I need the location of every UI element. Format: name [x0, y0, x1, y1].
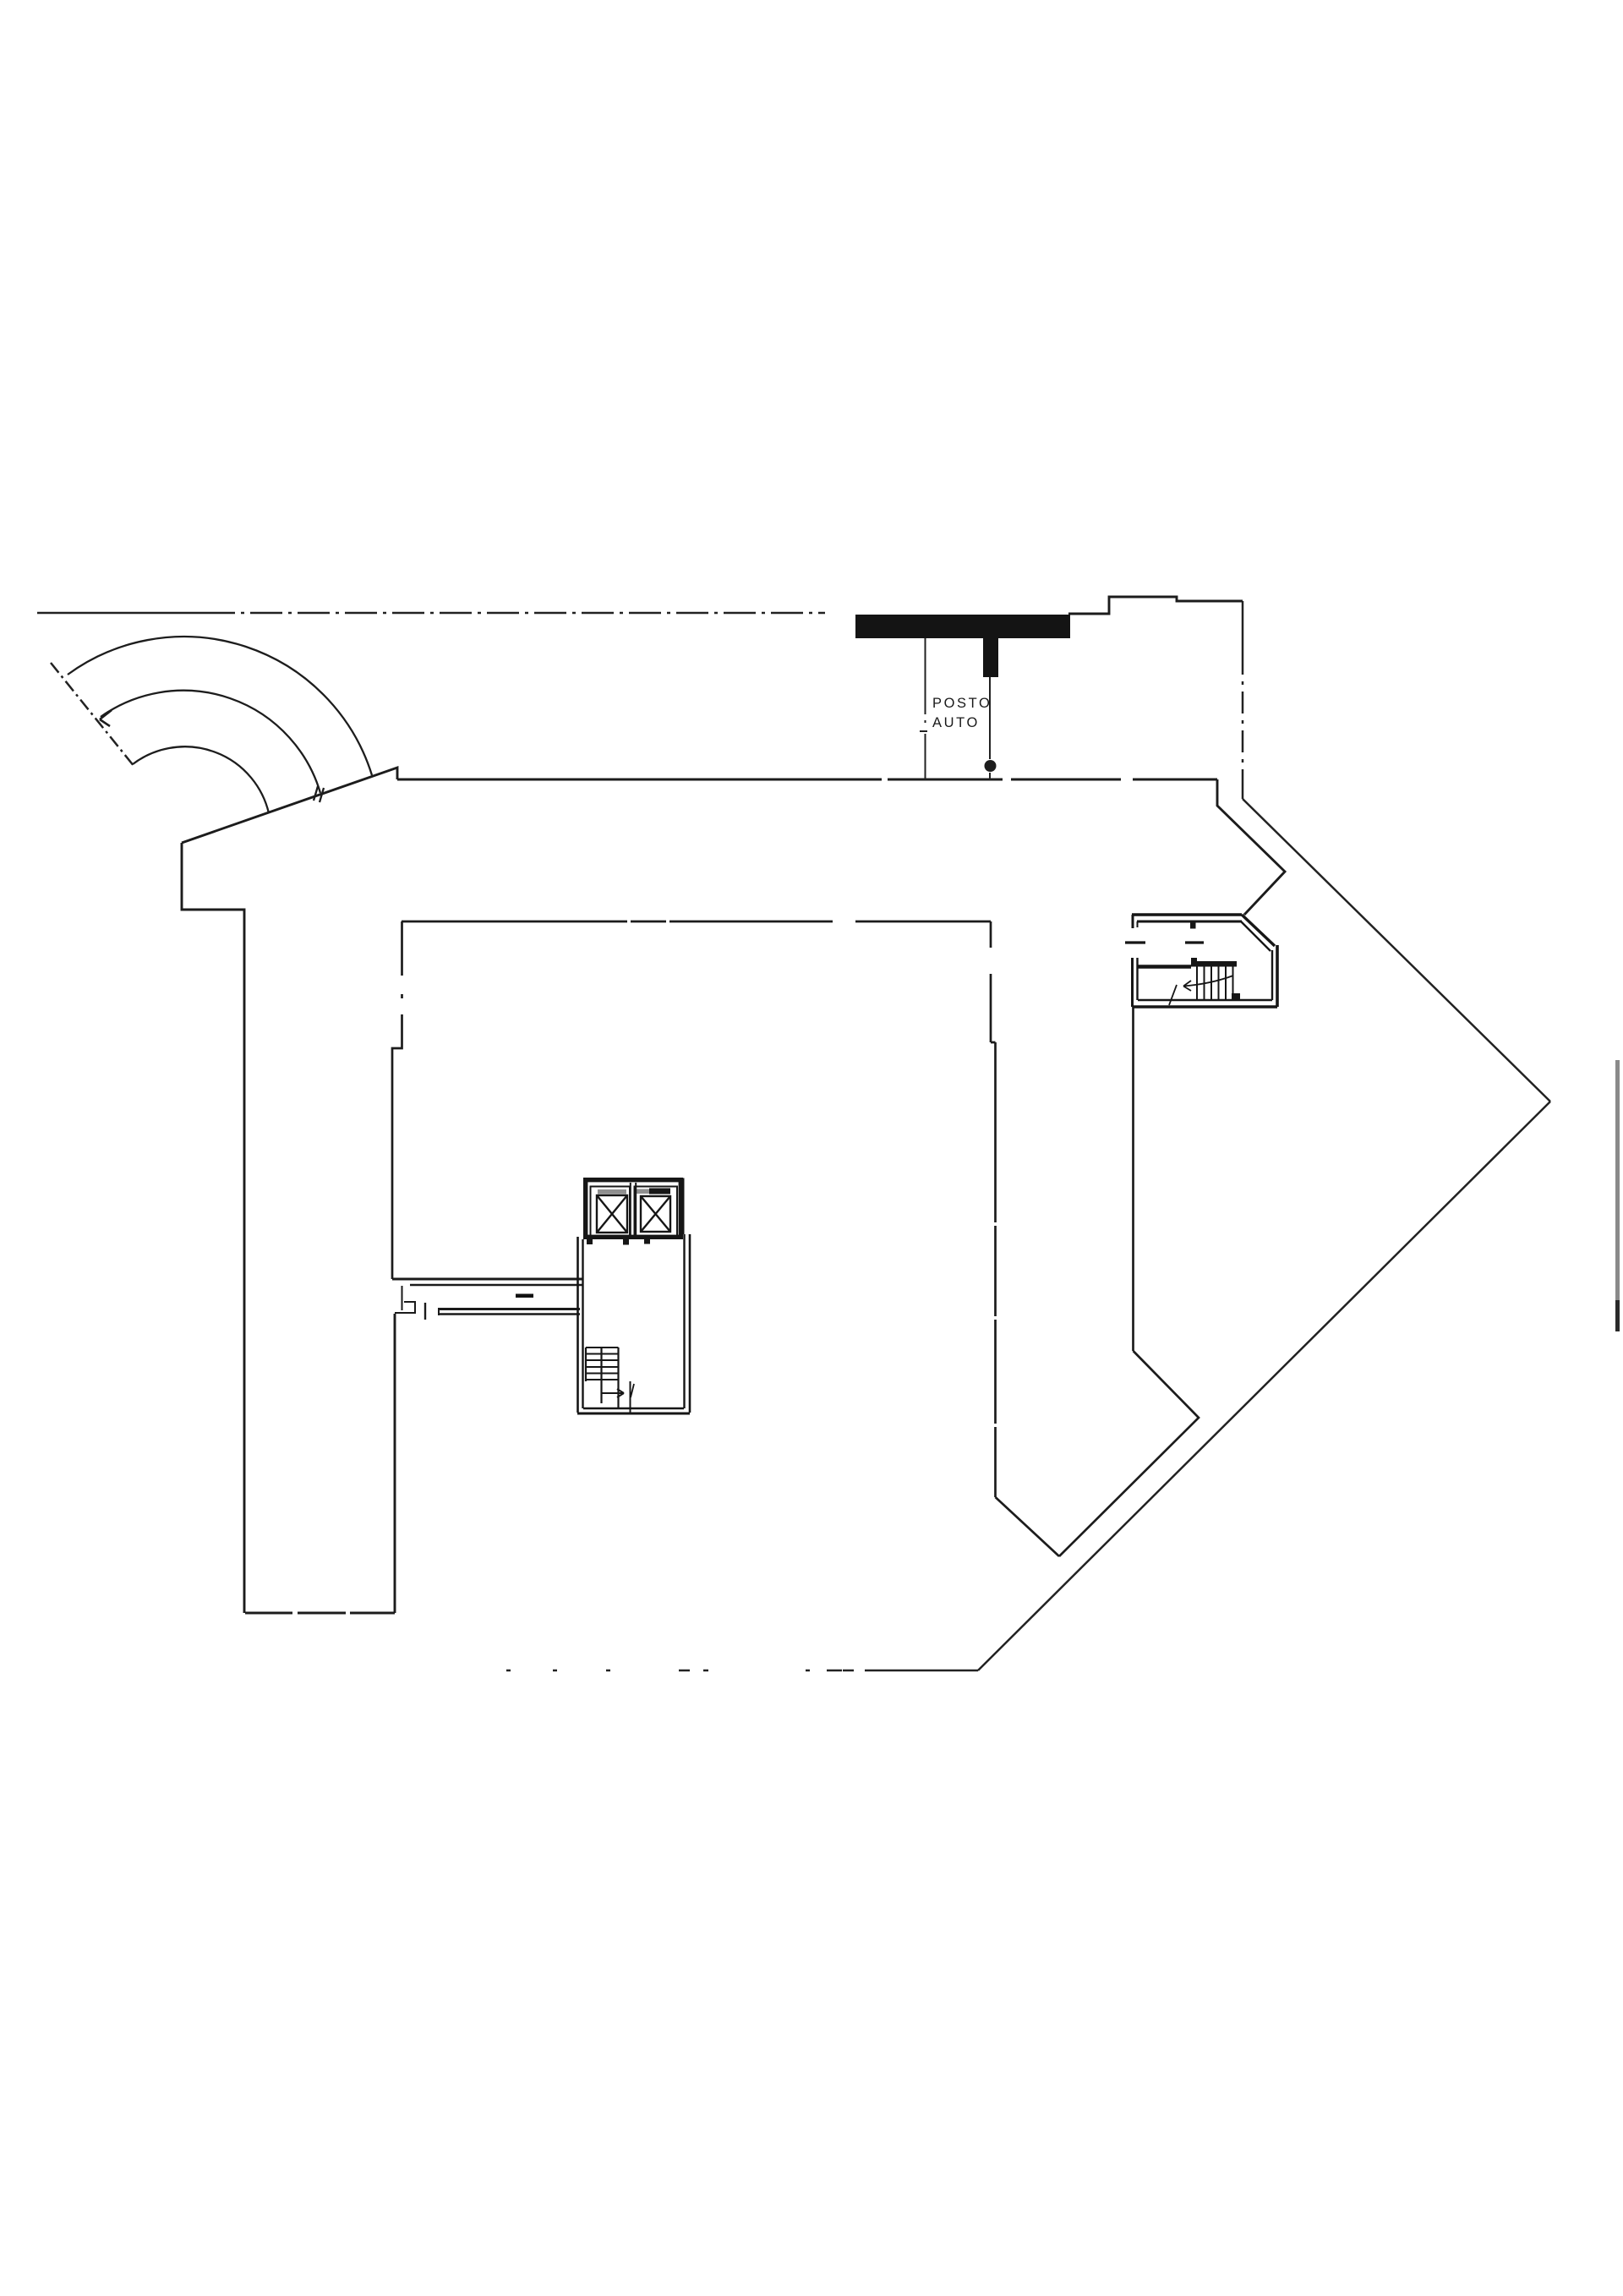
svg-text:POSTO: POSTO — [932, 696, 992, 711]
svg-text:AUTO: AUTO — [932, 715, 980, 730]
